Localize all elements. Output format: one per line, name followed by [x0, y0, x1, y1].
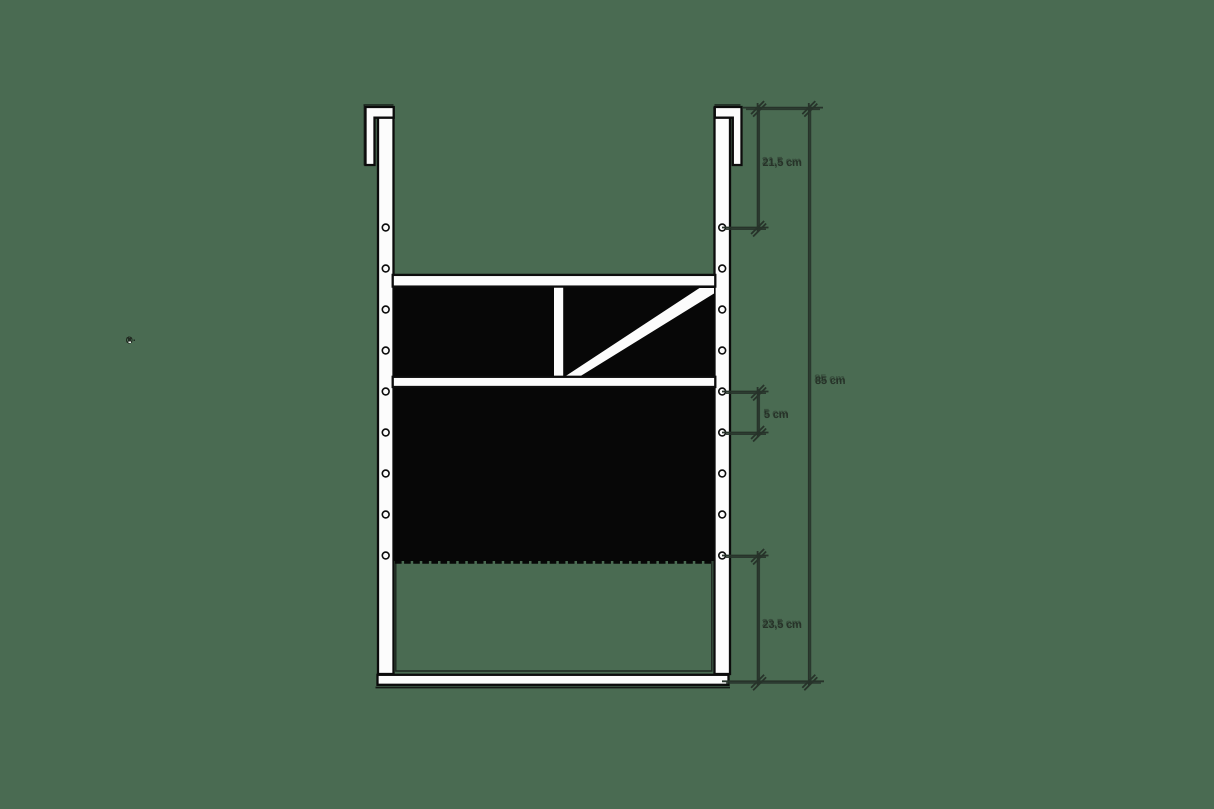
svg-text:5 cm: 5 cm — [763, 408, 788, 420]
svg-text:85 cm: 85 cm — [814, 373, 845, 385]
svg-text:21,5 cm: 21,5 cm — [762, 156, 802, 168]
svg-text:23,5 cm: 23,5 cm — [762, 618, 802, 630]
